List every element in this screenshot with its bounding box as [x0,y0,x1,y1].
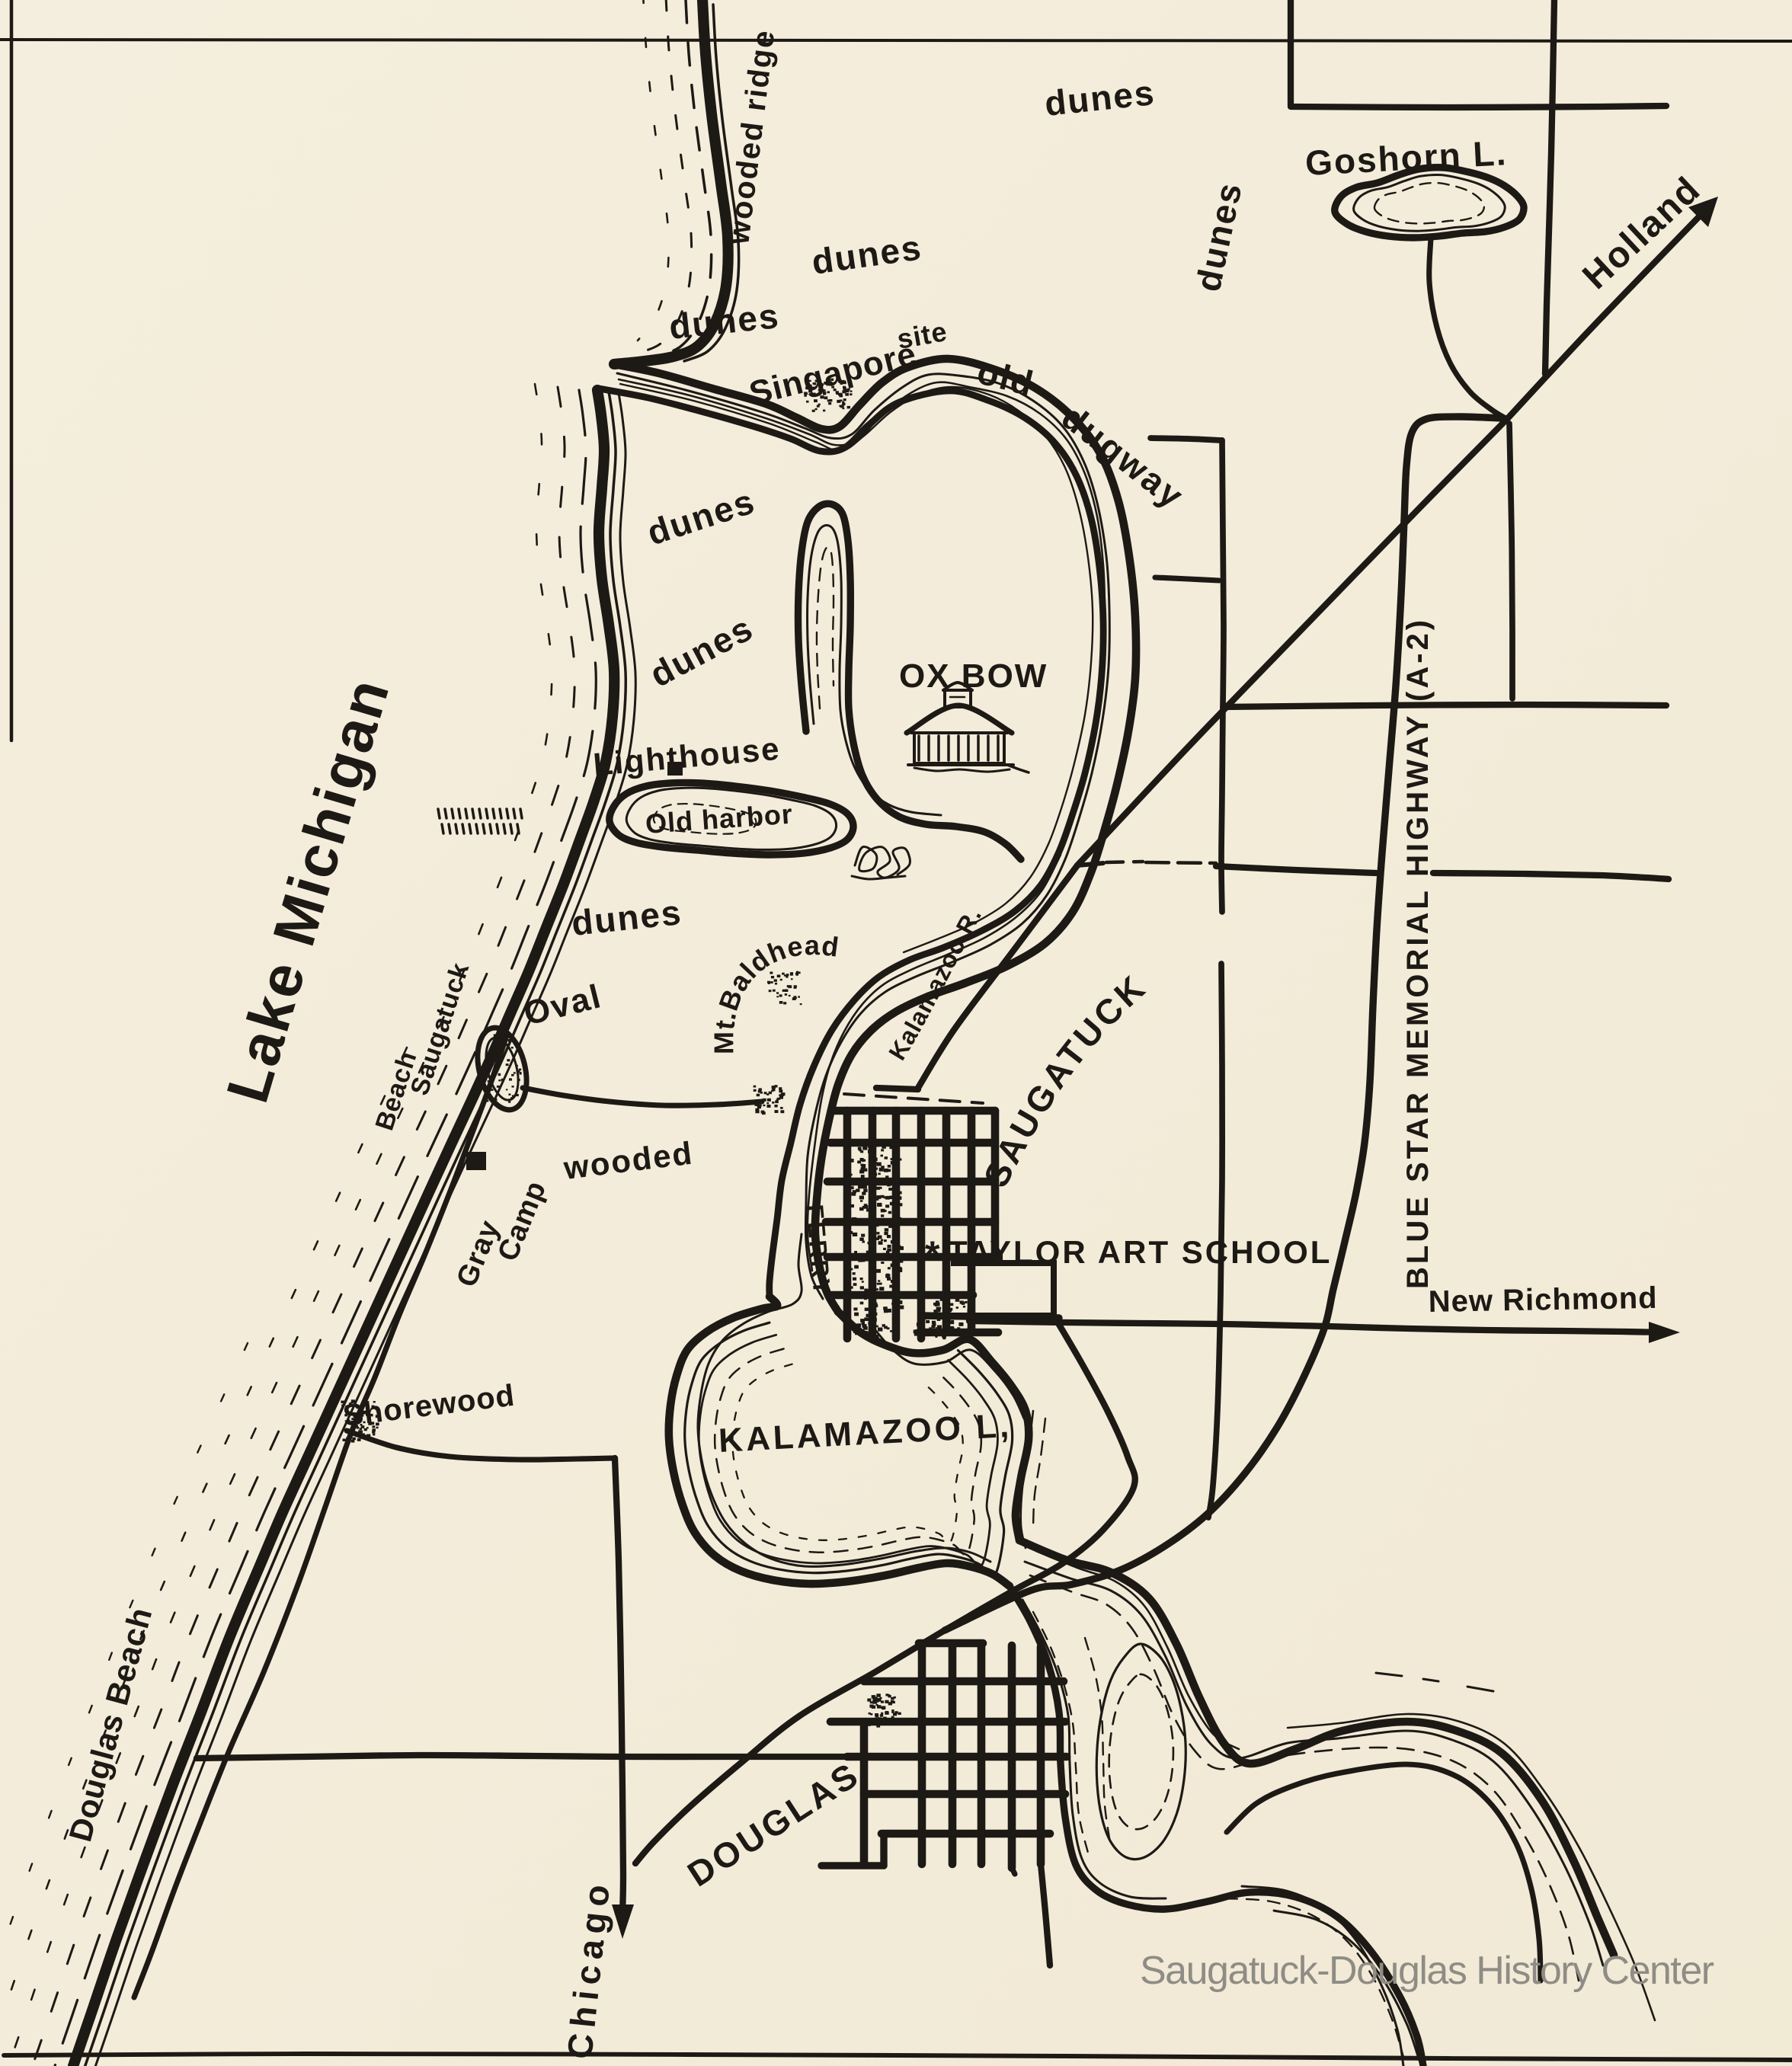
svg-text:BLUE STAR MEMORIAL HIGHWAY (A-: BLUE STAR MEMORIAL HIGHWAY (A-2) [1401,617,1435,1289]
svg-text:New Richmond: New Richmond [1428,1281,1658,1319]
svg-text:OX BOW: OX BOW [899,657,1048,695]
svg-text:TAYLOR ART SCHOOL: TAYLOR ART SCHOOL [948,1234,1332,1270]
svg-text:*: * [925,1233,940,1276]
svg-text:Saugatuck-Douglas History Cent: Saugatuck-Douglas History Center [1140,1949,1714,1993]
